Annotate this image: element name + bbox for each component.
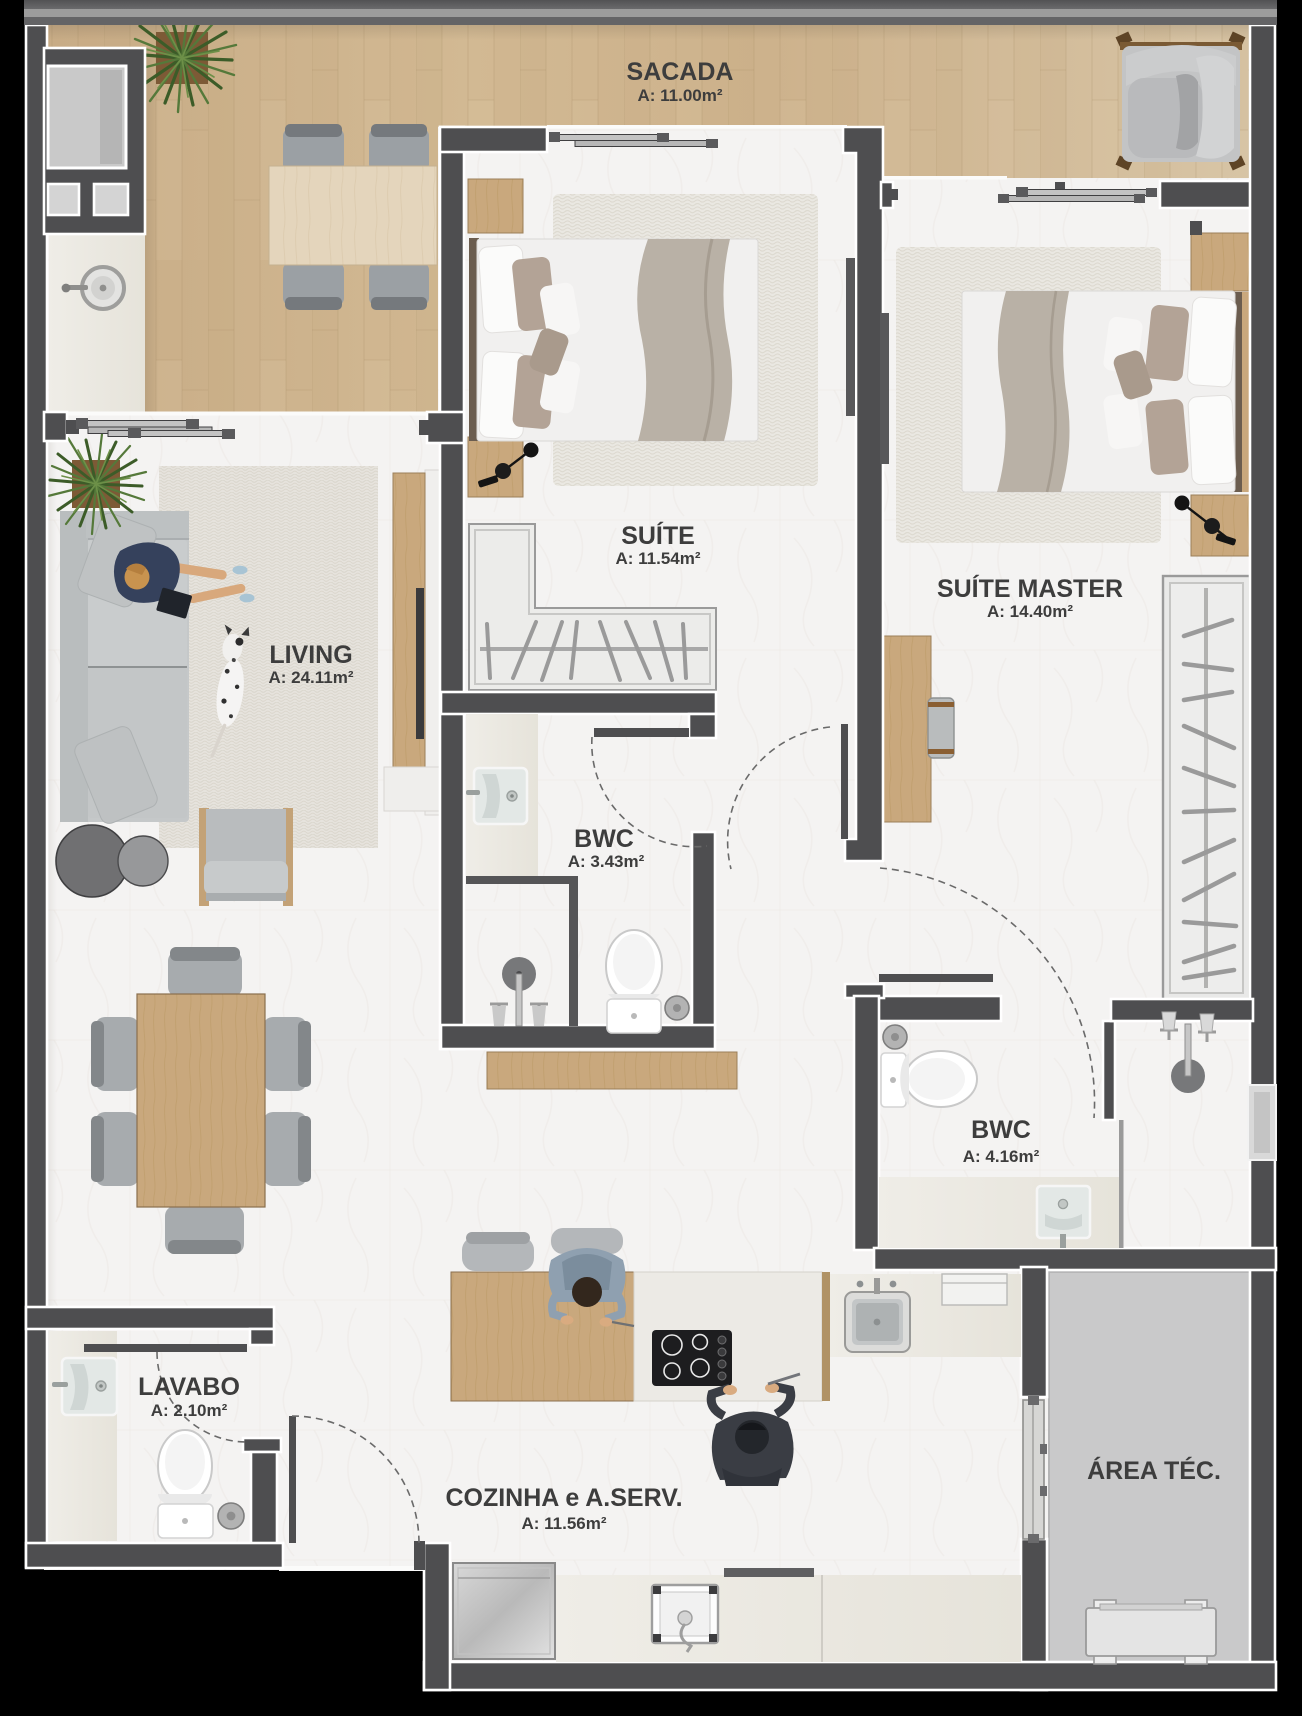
svg-text:A: 2.10m²: A: 2.10m²	[151, 1401, 228, 1420]
svg-text:A: 4.16m²: A: 4.16m²	[963, 1147, 1040, 1166]
svg-text:SUÍTE: SUÍTE	[621, 521, 695, 550]
svg-text:A: 3.43m²: A: 3.43m²	[568, 852, 645, 871]
svg-text:BWC: BWC	[574, 825, 634, 853]
svg-text:SUÍTE MASTER: SUÍTE MASTER	[937, 574, 1123, 603]
svg-text:A: 11.54m²: A: 11.54m²	[615, 549, 700, 568]
svg-text:SACADA: SACADA	[627, 58, 734, 86]
svg-text:LIVING: LIVING	[269, 641, 352, 669]
svg-text:LAVABO: LAVABO	[138, 1373, 240, 1401]
svg-text:COZINHA e A.SERV.: COZINHA e A.SERV.	[445, 1484, 682, 1512]
svg-text:ÁREA TÉC.: ÁREA TÉC.	[1087, 1456, 1221, 1485]
svg-text:A: 24.11m²: A: 24.11m²	[268, 668, 353, 687]
svg-text:BWC: BWC	[971, 1116, 1031, 1144]
svg-text:A: 11.00m²: A: 11.00m²	[637, 86, 722, 105]
svg-text:A: 14.40m²: A: 14.40m²	[987, 602, 1073, 621]
svg-text:A: 11.56m²: A: 11.56m²	[521, 1514, 606, 1533]
